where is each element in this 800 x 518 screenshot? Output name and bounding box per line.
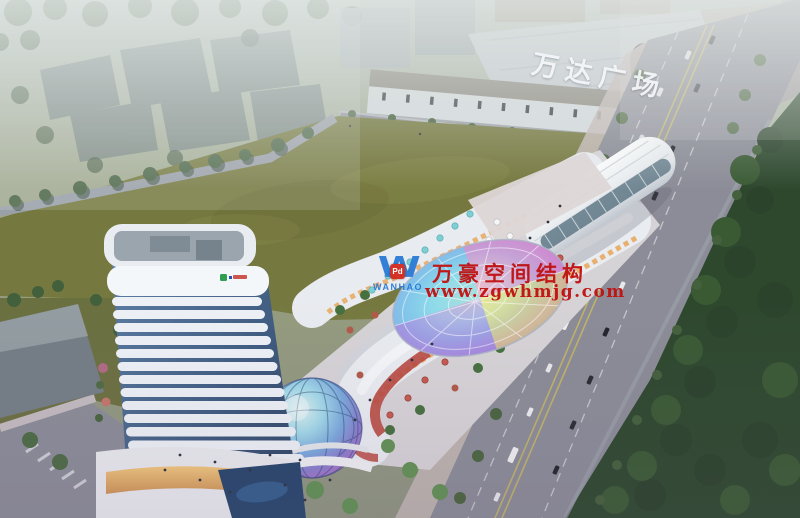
scene-canvas	[0, 0, 800, 518]
aerial-rendering-scene: 万达广场 W Pd WANHAO 万豪空间结构 www.zgwhmjg.com	[0, 0, 800, 518]
tower-fascia	[107, 266, 269, 296]
